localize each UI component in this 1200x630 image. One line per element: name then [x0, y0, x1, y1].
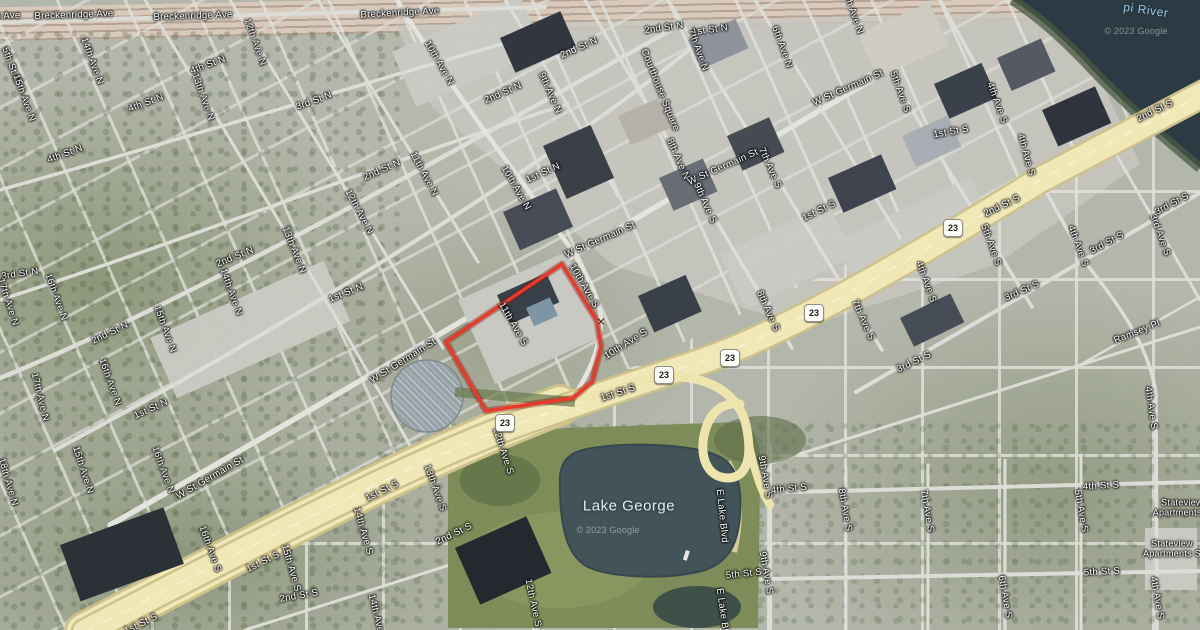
satellite-map[interactable]: e AveBreckenridge AveBreckenridge AveBre… [0, 0, 1200, 630]
park-pond [653, 586, 741, 628]
dome-building [391, 360, 463, 432]
lake-george [560, 445, 741, 577]
map-vector-layer [0, 0, 1200, 630]
